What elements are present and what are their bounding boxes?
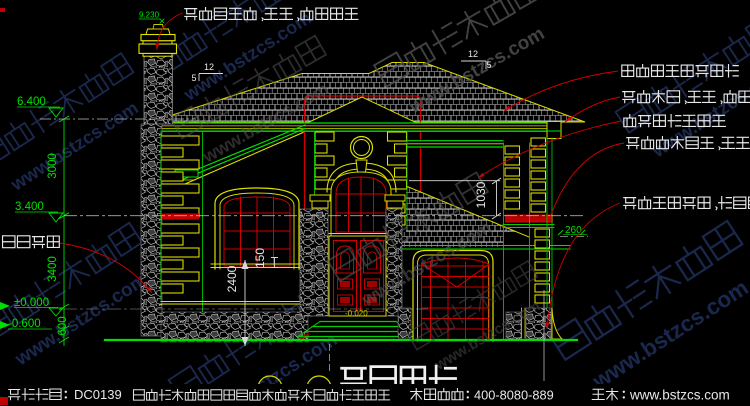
- svg-text:1030: 1030: [474, 181, 488, 208]
- svg-text:DC0139: DC0139: [74, 387, 122, 402]
- svg-text:12: 12: [468, 49, 478, 59]
- svg-text:2400: 2400: [225, 265, 239, 292]
- svg-text:5: 5: [486, 60, 491, 70]
- svg-text:150: 150: [253, 248, 267, 268]
- svg-text:5: 5: [191, 73, 196, 83]
- svg-text:600: 600: [57, 316, 69, 335]
- svg-text:3.400: 3.400: [15, 201, 44, 213]
- svg-text:www.bstzcs.com: www.bstzcs.com: [629, 388, 730, 403]
- svg-text:400-8080-889: 400-8080-889: [474, 388, 554, 403]
- svg-text:9.230: 9.230: [139, 11, 160, 20]
- svg-text:3400: 3400: [47, 256, 59, 282]
- svg-text:-0.020: -0.020: [345, 309, 368, 318]
- svg-text:-0.600: -0.600: [8, 318, 41, 330]
- svg-text:12: 12: [204, 62, 214, 72]
- svg-text:3000: 3000: [47, 153, 59, 179]
- svg-text:6.400: 6.400: [17, 96, 46, 108]
